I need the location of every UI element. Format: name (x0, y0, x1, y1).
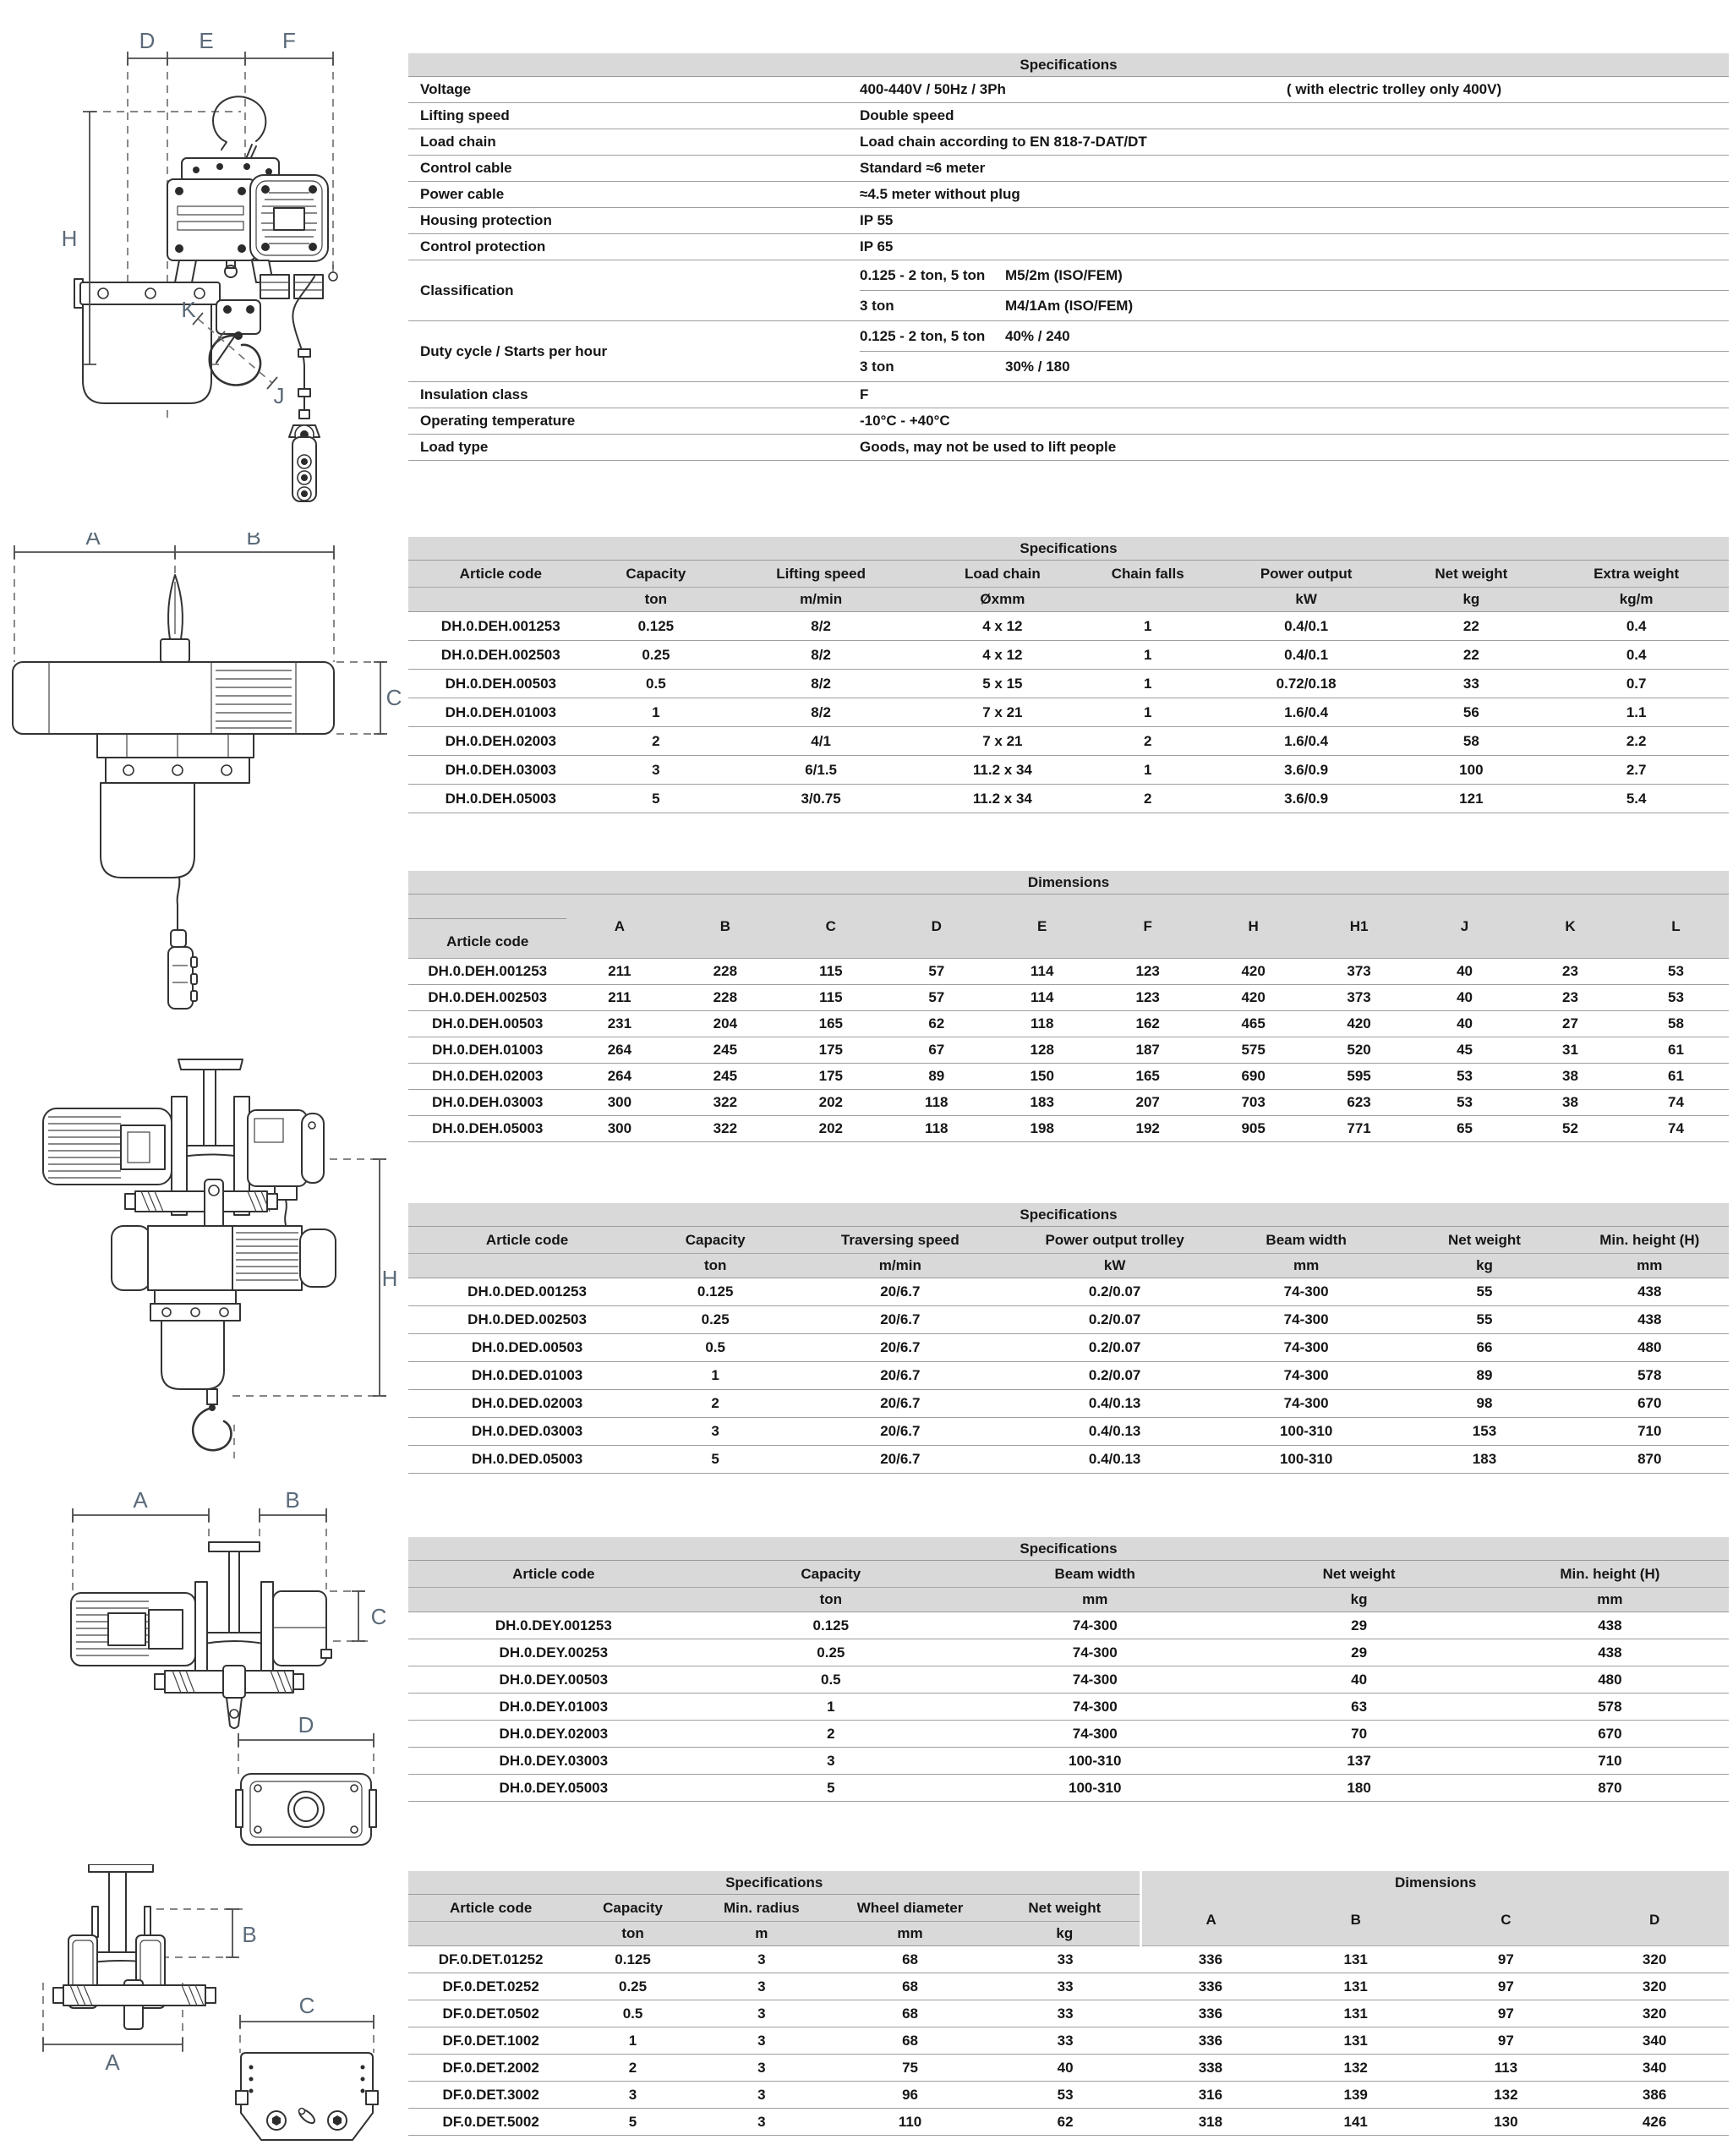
value-cell: 386 (1580, 2082, 1729, 2109)
spec-value: F (860, 386, 1287, 403)
value-cell: 68 (831, 1946, 989, 1973)
spec-label: Housing protection (408, 212, 860, 229)
table-row: DH.0.DEH.0100326424517567128187575520453… (408, 1037, 1729, 1064)
value-cell: 62 (883, 1011, 989, 1037)
value-cell: 202 (778, 1090, 883, 1116)
value-cell: 2 (573, 2055, 692, 2082)
hoist-body-linework (13, 575, 334, 1009)
value-cell: 204 (672, 1011, 778, 1037)
article-code-cell: DH.0.DEY.02003 (408, 1721, 699, 1748)
value-cell: 74-300 (1214, 1390, 1399, 1418)
article-code-cell: DH.0.DED.00503 (408, 1334, 646, 1362)
spec-label: Voltage (408, 81, 860, 98)
spec-sublabel: 0.125 - 2 ton, 5 ton (860, 267, 1005, 284)
value-cell: 3.6/0.9 (1214, 756, 1399, 785)
column-unit: m (692, 1922, 831, 1946)
dim-label-j: J (274, 383, 285, 408)
value-cell: 20/6.7 (784, 1306, 1015, 1334)
value-cell: 340 (1580, 2055, 1729, 2082)
table-row: DH.0.DEH.0100318/27 x 2111.6/0.4561.1 (408, 698, 1729, 727)
article-code-cell: DH.0.DED.03003 (408, 1418, 646, 1446)
trolley-linework (53, 1864, 378, 2140)
value-cell: 870 (1571, 1446, 1729, 1474)
value-cell: 198 (989, 1116, 1095, 1142)
article-code-cell: DH.0.DED.001253 (408, 1278, 646, 1306)
value-cell: 0.5 (573, 2000, 692, 2027)
column-header: D (883, 895, 989, 959)
value-cell: 0.125 (646, 1278, 784, 1306)
value-cell: 68 (831, 2027, 989, 2055)
article-code-cell: DH.0.DEY.03003 (408, 1748, 699, 1775)
value-cell: 131 (1280, 2027, 1432, 2055)
value-cell: 438 (1571, 1306, 1729, 1334)
column-header: B (1280, 1895, 1432, 1946)
value-cell: 1 (1082, 698, 1214, 727)
column-header: Capacity (699, 1561, 963, 1588)
article-code-cell: DH.0.DEY.01003 (408, 1694, 699, 1721)
value-cell: 1 (646, 1362, 784, 1390)
table-row: DH.0.DED.0012530.12520/6.70.2/0.0774-300… (408, 1278, 1729, 1306)
value-cell: 62 (989, 2109, 1141, 2136)
value-cell: 771 (1306, 1116, 1412, 1142)
value-cell: 53 (989, 2082, 1141, 2109)
column-unit: ton (646, 1254, 784, 1278)
value-cell: 211 (566, 959, 672, 985)
value-cell: 336 (1141, 1946, 1280, 1973)
value-cell: 165 (1095, 1064, 1200, 1090)
value-cell: 65 (1412, 1116, 1517, 1142)
value-cell: 3 (692, 2109, 831, 2136)
value-cell: 33 (989, 1973, 1141, 2000)
dim-label-a: A (105, 2049, 120, 2075)
value-cell: 5.4 (1544, 785, 1729, 813)
dim-label-d: D (298, 1712, 314, 1737)
value-cell: 74-300 (963, 1694, 1227, 1721)
value-cell: 3 (692, 2000, 831, 2027)
article-code-cell: DH.0.DEY.001253 (408, 1612, 699, 1639)
spec-sublabel: 3 ton (860, 298, 1005, 315)
value-cell: 480 (1491, 1666, 1729, 1694)
column-header: Power output (1214, 561, 1399, 588)
value-cell: 264 (566, 1064, 672, 1090)
table-row: DH.0.DEH.0012530.1258/24 x 1210.4/0.1220… (408, 612, 1729, 641)
article-code-cell: DH.0.DEH.03003 (408, 1090, 566, 1116)
dim-label-e: E (199, 28, 213, 53)
value-cell: 300 (566, 1090, 672, 1116)
value-cell: 336 (1141, 2000, 1280, 2027)
value-cell: 45 (1412, 1037, 1517, 1064)
value-cell: 29 (1227, 1639, 1490, 1666)
value-cell: 118 (883, 1090, 989, 1116)
value-cell: 245 (672, 1037, 778, 1064)
value-cell: 114 (989, 959, 1095, 985)
spec-label: Control cable (408, 160, 860, 177)
dim-label-c: C (299, 1993, 315, 2018)
spec-row: Load chain Load chain according to EN 81… (408, 129, 1729, 156)
value-cell: 5 x 15 (923, 670, 1081, 698)
spec-value: IP 55 (860, 212, 1287, 229)
dim-label-h: H (382, 1266, 398, 1291)
datasheet-page: Specifications Voltage 400-440V / 50Hz /… (0, 0, 1733, 2156)
spec-row: Load type Goods, may not be used to lift… (408, 435, 1729, 461)
table-row: DH.0.DEY.02003274-30070670 (408, 1721, 1729, 1748)
value-cell: 1.1 (1544, 698, 1729, 727)
value-cell: 2 (1082, 727, 1214, 756)
spec-row: Lifting speed Double speed (408, 103, 1729, 129)
value-cell: 338 (1141, 2055, 1280, 2082)
value-cell: 74-300 (1214, 1362, 1399, 1390)
value-cell: 40 (1412, 985, 1517, 1011)
value-cell: 118 (883, 1116, 989, 1142)
value-cell: 58 (1398, 727, 1544, 756)
spec-row-duty-cycle: Duty cycle / Starts per hour 0.125 - 2 t… (408, 321, 1729, 382)
value-cell: 89 (883, 1064, 989, 1090)
value-cell: 23 (1517, 959, 1623, 985)
value-cell: 0.125 (593, 612, 719, 641)
spec-value: Load chain according to EN 818-7-DAT/DT (860, 134, 1287, 150)
value-cell: 56 (1398, 698, 1544, 727)
dim-label-b: B (285, 1492, 299, 1513)
column-unit: kg (1398, 588, 1544, 612)
value-cell: 98 (1398, 1390, 1570, 1418)
value-cell: 710 (1491, 1748, 1729, 1775)
spec-value: 400-440V / 50Hz / 3Ph (860, 81, 1287, 98)
article-code-cell: DF.0.DET.3002 (408, 2082, 573, 2109)
column-unit (408, 588, 593, 612)
column-header: E (989, 895, 1095, 959)
column-header: Article code (408, 1227, 646, 1254)
value-cell: 131 (1280, 2000, 1432, 2027)
table-row: DH.0.DEY.050035100-310180870 (408, 1775, 1729, 1802)
general-specifications-table: Specifications Voltage 400-440V / 50Hz /… (408, 53, 1729, 461)
value-cell: 420 (1200, 959, 1306, 985)
table-title: Specifications (408, 537, 1729, 561)
value-cell: 438 (1491, 1639, 1729, 1666)
value-cell: 70 (1227, 1721, 1490, 1748)
value-cell: 4 x 12 (923, 612, 1081, 641)
value-cell: 4 x 12 (923, 641, 1081, 670)
value-cell: 438 (1491, 1612, 1729, 1639)
beam-trolley-grid: SpecificationsDimensionsArticle codeCapa… (408, 1871, 1729, 2136)
value-cell: 0.2/0.07 (1016, 1362, 1214, 1390)
spec-label: Classification (408, 282, 860, 299)
article-code-cell: DH.0.DEH.02003 (408, 727, 593, 756)
value-cell: 61 (1623, 1064, 1729, 1090)
value-cell: 52 (1517, 1116, 1623, 1142)
value-cell: 0.2/0.07 (1016, 1278, 1214, 1306)
dim-label-f: F (282, 28, 296, 53)
dim-label-c: C (386, 685, 402, 710)
column-unit: mm (1491, 1588, 1729, 1612)
article-code-cell: DF.0.DET.5002 (408, 2109, 573, 2136)
value-cell: 322 (672, 1090, 778, 1116)
value-cell: 3 (692, 1973, 831, 2000)
article-code-cell: DH.0.DEH.05003 (408, 785, 593, 813)
value-cell: 57 (883, 985, 989, 1011)
spec-label: Insulation class (408, 386, 860, 403)
value-cell: 74 (1623, 1116, 1729, 1142)
spec-subvalue: 40% / 240 (1005, 328, 1070, 345)
table-title: Dimensions (408, 871, 1729, 895)
value-cell: 150 (989, 1064, 1095, 1090)
article-code-cell: DH.0.DEY.05003 (408, 1775, 699, 1802)
value-cell: 63 (1227, 1694, 1490, 1721)
article-code-cell: DH.0.DEH.002503 (408, 985, 566, 1011)
value-cell: 33 (989, 2027, 1141, 2055)
value-cell: 0.25 (699, 1639, 963, 1666)
value-cell: 1.6/0.4 (1214, 698, 1399, 727)
table-row: DH.0.DEH.0025032112281155711412342037340… (408, 985, 1729, 1011)
value-cell: 33 (1398, 670, 1544, 698)
value-cell: 595 (1306, 1064, 1412, 1090)
value-cell: 100-310 (963, 1775, 1227, 1802)
value-cell: 0.4/0.1 (1214, 641, 1399, 670)
value-cell: 57 (883, 959, 989, 985)
value-cell: 67 (883, 1037, 989, 1064)
dim-label-d: D (139, 28, 156, 53)
column-header: Beam width (963, 1561, 1227, 1588)
spec-row: Voltage 400-440V / 50Hz / 3Ph( with elec… (408, 77, 1729, 103)
column-unit: kW (1016, 1254, 1214, 1278)
table-row: DH.0.DEH.0500353/0.7511.2 x 3423.6/0.912… (408, 785, 1729, 813)
spec-note: ( with electric trolley only 400V) (1287, 81, 1501, 98)
value-cell: 55 (1398, 1278, 1570, 1306)
value-cell: 623 (1306, 1090, 1412, 1116)
value-cell: 3.6/0.9 (1214, 785, 1399, 813)
value-cell: 870 (1491, 1775, 1729, 1802)
value-cell: 2 (593, 727, 719, 756)
value-cell: 2.7 (1544, 756, 1729, 785)
value-cell: 38 (1517, 1090, 1623, 1116)
value-cell: 322 (672, 1116, 778, 1142)
column-header: Net weight (1398, 561, 1544, 588)
table-row: DH.0.DEY.005030.574-30040480 (408, 1666, 1729, 1694)
value-cell: 68 (831, 2000, 989, 2027)
article-code-cell: DH.0.DEY.00503 (408, 1666, 699, 1694)
article-code-cell: DH.0.DEH.01003 (408, 698, 593, 727)
column-unit (408, 1254, 646, 1278)
spec-subvalue: M4/1Am (ISO/FEM) (1005, 298, 1133, 315)
value-cell: 110 (831, 2109, 989, 2136)
electric-trolley-grid: SpecificationsArticle codeCapacityTraver… (408, 1203, 1729, 1474)
value-cell: 8/2 (719, 698, 923, 727)
column-header: Article code (408, 1561, 699, 1588)
value-cell: 0.5 (699, 1666, 963, 1694)
table-row: DH.0.DEY.002530.2574-30029438 (408, 1639, 1729, 1666)
spec-row-classification: Classification 0.125 - 2 ton, 5 tonM5/2m… (408, 260, 1729, 321)
value-cell: 131 (1280, 1946, 1432, 1973)
table-row: DH.0.DED.005030.520/6.70.2/0.0774-300664… (408, 1334, 1729, 1362)
value-cell: 480 (1571, 1334, 1729, 1362)
spec-row: Housing protection IP 55 (408, 208, 1729, 234)
value-cell: 0.25 (593, 641, 719, 670)
value-cell: 8/2 (719, 641, 923, 670)
spec-row: Control cable Standard ≈6 meter (408, 156, 1729, 182)
table-row: DF.0.DET.3002339653316139132386 (408, 2082, 1729, 2109)
spec-value: IP 65 (860, 238, 1287, 255)
value-cell: 121 (1398, 785, 1544, 813)
hoist-with-trolley-drawing: H (21, 1053, 402, 1467)
column-header: Net weight (1398, 1227, 1570, 1254)
table-row: DF.0.DET.012520.1253683333613197320 (408, 1946, 1729, 1973)
value-cell: 8/2 (719, 612, 923, 641)
spec-sublabel: 3 ton (860, 358, 1005, 375)
article-code-cell: DF.0.DET.01252 (408, 1946, 573, 1973)
value-cell: 11.2 x 34 (923, 785, 1081, 813)
spec-label: Operating temperature (408, 413, 860, 430)
article-code-cell: DH.0.DEH.03003 (408, 756, 593, 785)
value-cell: 0.4/0.1 (1214, 612, 1399, 641)
value-cell: 0.5 (593, 670, 719, 698)
value-cell: 3 (593, 756, 719, 785)
article-code-cell: DH.0.DEH.02003 (408, 1064, 566, 1090)
column-unit (408, 1922, 573, 1946)
column-header: Min. radius (692, 1895, 831, 1922)
value-cell: 27 (1517, 1011, 1623, 1037)
value-cell: 0.72/0.18 (1214, 670, 1399, 698)
value-cell: 1 (573, 2027, 692, 2055)
value-cell: 183 (1398, 1446, 1570, 1474)
column-header: D (1580, 1895, 1729, 1946)
value-cell: 0.4 (1544, 612, 1729, 641)
table-row: DF.0.DET.100213683333613197340 (408, 2027, 1729, 2055)
dim-label-a: A (133, 1492, 148, 1513)
dim-label-b: B (246, 533, 260, 550)
value-cell: 74-300 (963, 1721, 1227, 1748)
spec-label: Lifting speed (408, 107, 860, 124)
dim-label-a: A (85, 533, 101, 550)
column-header: Min. height (H) (1571, 1227, 1729, 1254)
value-cell: 75 (831, 2055, 989, 2082)
spec-subvalue: M5/2m (ISO/FEM) (1005, 267, 1123, 284)
value-cell: 0.4/0.13 (1016, 1418, 1214, 1446)
value-cell: 690 (1200, 1064, 1306, 1090)
push-trolley-grid: SpecificationsArticle codeCapacityBeam w… (408, 1537, 1729, 1802)
column-header: Min. height (H) (1491, 1561, 1729, 1588)
value-cell: 373 (1306, 959, 1412, 985)
hoist-spec-grid: SpecificationsArticle codeCapacityLiftin… (408, 537, 1729, 813)
value-cell: 3 (646, 1418, 784, 1446)
value-cell: 3 (692, 1946, 831, 1973)
value-cell: 74-300 (963, 1612, 1227, 1639)
article-code-cell: DF.0.DET.2002 (408, 2055, 573, 2082)
value-cell: 0.7 (1544, 670, 1729, 698)
value-cell: 53 (1412, 1064, 1517, 1090)
value-cell: 20/6.7 (784, 1278, 1015, 1306)
beam-trolley-table: SpecificationsDimensionsArticle codeCapa… (408, 1871, 1729, 2136)
spec-value: ≈4.5 meter without plug (860, 186, 1287, 203)
dim-label-c: C (371, 1604, 387, 1629)
value-cell: 100-310 (1214, 1418, 1399, 1446)
table-row: DH.0.DED.03003320/6.70.4/0.13100-3101537… (408, 1418, 1729, 1446)
column-header: C (1432, 1895, 1581, 1946)
value-cell: 139 (1280, 2082, 1432, 2109)
value-cell: 23 (1517, 985, 1623, 1011)
column-header: H1 (1306, 895, 1412, 959)
value-cell: 420 (1306, 1011, 1412, 1037)
value-cell: 1 (1082, 670, 1214, 698)
value-cell: 0.125 (699, 1612, 963, 1639)
spec-value: Goods, may not be used to lift people (860, 439, 1287, 456)
value-cell: 3/0.75 (719, 785, 923, 813)
column-unit: kg (1398, 1254, 1570, 1278)
column-unit: m/min (719, 588, 923, 612)
article-code-cell: DH.0.DEH.01003 (408, 1037, 566, 1064)
value-cell: 670 (1491, 1721, 1729, 1748)
value-cell: 0.4 (1544, 641, 1729, 670)
value-cell: 2 (1082, 785, 1214, 813)
value-cell: 3 (692, 2082, 831, 2109)
spec-label: Load type (408, 439, 860, 456)
value-cell: 670 (1571, 1390, 1729, 1418)
value-cell: 55 (1398, 1306, 1570, 1334)
value-cell: 2 (646, 1390, 784, 1418)
value-cell: 1 (1082, 756, 1214, 785)
value-cell: 336 (1141, 1973, 1280, 2000)
value-cell: 74-300 (1214, 1334, 1399, 1362)
value-cell: 1.6/0.4 (1214, 727, 1399, 756)
value-cell: 89 (1398, 1362, 1570, 1390)
column-header: Beam width (1214, 1227, 1399, 1254)
column-header: Load chain (923, 561, 1081, 588)
value-cell: 40 (1412, 1011, 1517, 1037)
value-cell: 20/6.7 (784, 1362, 1015, 1390)
value-cell: 40 (1412, 959, 1517, 985)
value-cell: 100 (1398, 756, 1544, 785)
column-header: Extra weight (1544, 561, 1729, 588)
value-cell: 207 (1095, 1090, 1200, 1116)
dim-label-k: K (181, 297, 196, 322)
value-cell: 202 (778, 1116, 883, 1142)
spec-row: Power cable ≈4.5 meter without plug (408, 182, 1729, 208)
column-header: Power output trolley (1016, 1227, 1214, 1254)
value-cell: 3 (692, 2055, 831, 2082)
column-header: Article code (408, 895, 566, 959)
table-row: DH.0.DED.0025030.2520/6.70.2/0.0774-3005… (408, 1306, 1729, 1334)
article-code-cell: DH.0.DED.01003 (408, 1362, 646, 1390)
value-cell: 20/6.7 (784, 1390, 1015, 1418)
value-cell: 74-300 (1214, 1306, 1399, 1334)
value-cell: 3 (573, 2082, 692, 2109)
column-header: J (1412, 895, 1517, 959)
table-row: DH.0.DEH.0300330032220211818320770362353… (408, 1090, 1729, 1116)
value-cell: 53 (1623, 985, 1729, 1011)
value-cell: 38 (1517, 1064, 1623, 1090)
column-unit: kg (1227, 1588, 1490, 1612)
column-header: Capacity (646, 1227, 784, 1254)
value-cell: 61 (1623, 1037, 1729, 1064)
value-cell: 162 (1095, 1011, 1200, 1037)
value-cell: 5 (646, 1446, 784, 1474)
column-unit: m/min (784, 1254, 1015, 1278)
value-cell: 74-300 (963, 1666, 1227, 1694)
value-cell: 465 (1200, 1011, 1306, 1037)
value-cell: 0.25 (573, 1973, 692, 2000)
spec-label: Load chain (408, 134, 860, 150)
value-cell: 74 (1623, 1090, 1729, 1116)
table-row: DH.0.DEH.0050323120416562118162465420402… (408, 1011, 1729, 1037)
spec-sublabel: 0.125 - 2 ton, 5 ton (860, 328, 1005, 345)
column-header: Lifting speed (719, 561, 923, 588)
article-code-cell: DF.0.DET.1002 (408, 2027, 573, 2055)
value-cell: 7 x 21 (923, 698, 1081, 727)
column-header: L (1623, 895, 1729, 959)
value-cell: 180 (1227, 1775, 1490, 1802)
table-row: DH.0.DEH.0025030.258/24 x 1210.4/0.1220.… (408, 641, 1729, 670)
value-cell: 97 (1432, 1946, 1581, 1973)
column-header: H (1200, 895, 1306, 959)
column-unit: mm (1214, 1254, 1399, 1278)
